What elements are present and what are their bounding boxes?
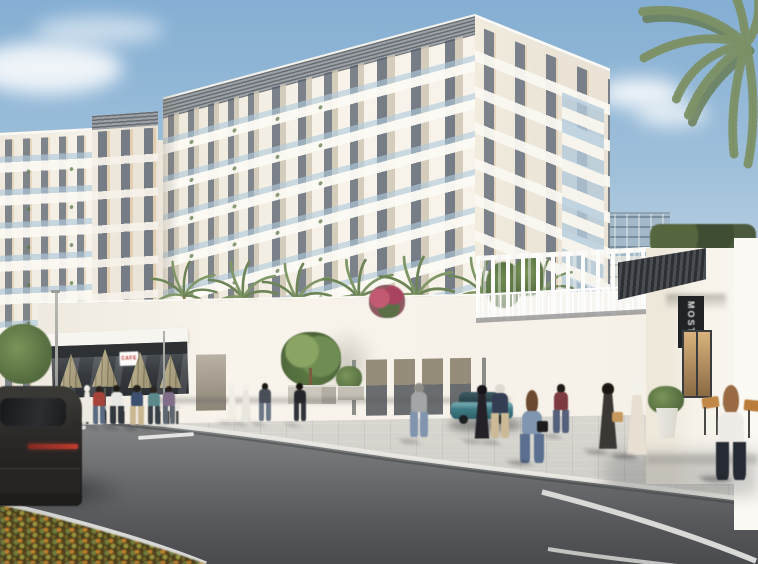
person-legs	[109, 406, 124, 425]
person-man-maroon-top	[552, 384, 571, 436]
person-torso	[294, 390, 306, 404]
person-legs	[714, 442, 748, 480]
person-bag	[612, 412, 622, 422]
person-cafe-man-white	[109, 385, 124, 427]
person-legs	[552, 410, 571, 433]
person-woman-denim-bag	[519, 390, 545, 463]
render-scene: MOSTE CAFE	[0, 0, 758, 564]
person-legs	[409, 412, 430, 438]
person-man-navy-tee-shorts	[490, 384, 511, 442]
person-robe	[81, 392, 94, 422]
person-head	[631, 381, 644, 396]
person-legs	[293, 403, 308, 421]
person-head	[723, 385, 739, 415]
person-kandura-man-road	[80, 385, 94, 423]
person-head	[526, 390, 538, 414]
person-torso	[93, 392, 104, 406]
person-robe	[239, 390, 253, 422]
person-legs	[258, 403, 272, 421]
person-torso	[259, 389, 270, 403]
person-cafe-man-navy	[129, 385, 145, 428]
person-man-kandura-tall	[624, 381, 651, 456]
person-head	[229, 383, 236, 391]
person-kandura-man-a	[225, 383, 239, 422]
person-torso	[554, 392, 569, 410]
palm-fronds-top-right	[594, 0, 758, 204]
person-man-grey-sweater	[409, 383, 430, 441]
person-walker-man-black	[293, 383, 308, 424]
person-legs	[129, 406, 145, 425]
person-robe	[624, 395, 650, 455]
person-kandura-man-b	[239, 383, 253, 423]
person-head	[296, 383, 303, 390]
person-cafe-woman-mauve	[162, 386, 176, 426]
person-torso	[718, 412, 745, 442]
person-torso	[148, 393, 160, 407]
person-woman-white-top-fg	[714, 385, 748, 480]
person-torso	[163, 392, 174, 406]
person-head	[84, 385, 91, 392]
person-legs	[490, 413, 511, 439]
person-head	[150, 386, 157, 393]
person-torso	[111, 392, 123, 406]
person-legs	[92, 406, 106, 424]
person-legs	[162, 406, 176, 424]
person-legs	[147, 406, 162, 424]
person-torso	[492, 393, 508, 413]
person-robe	[225, 390, 238, 421]
person-torso	[131, 392, 143, 407]
person-cafe-woman-red	[92, 386, 106, 426]
person-torso	[411, 392, 427, 412]
person-head	[477, 385, 487, 395]
person-head	[243, 383, 250, 391]
person-woman-abaya-tan-bag	[596, 383, 621, 452]
person-bag	[537, 421, 548, 432]
person-legs	[519, 434, 545, 463]
person-cafe-woman-teal	[147, 386, 162, 427]
person-head	[602, 383, 614, 395]
person-walker-woman-grey	[258, 383, 272, 423]
